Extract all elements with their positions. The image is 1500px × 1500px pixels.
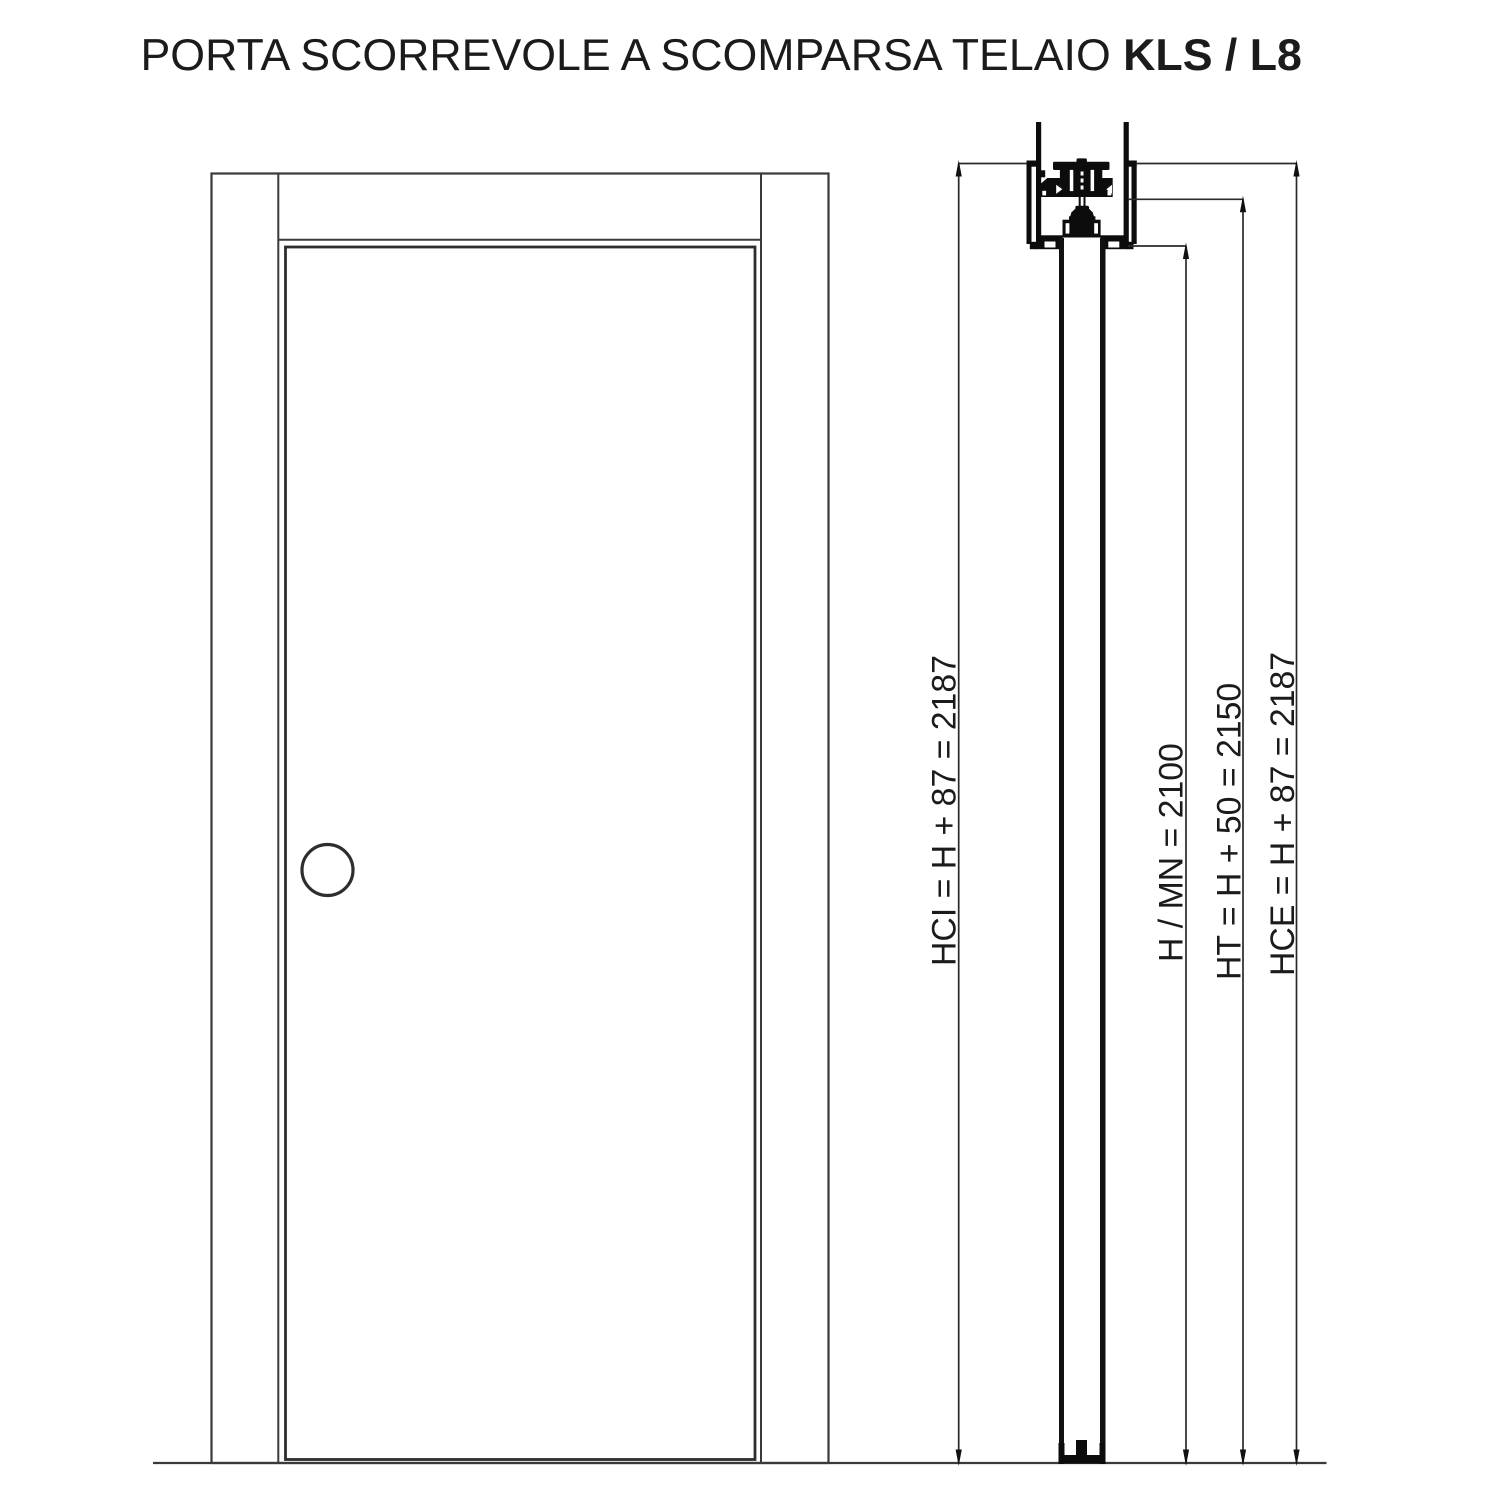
svg-text:PORTA SCORREVOLE A SCOMPARSA T: PORTA SCORREVOLE A SCOMPARSA TELAIO KLS … <box>141 31 1302 80</box>
svg-text:H / MN = 2100: H / MN = 2100 <box>1153 743 1191 962</box>
svg-text:HCI = H + 87 = 2187: HCI = H + 87 = 2187 <box>926 655 964 966</box>
svg-text:HCE = H + 87 = 2187: HCE = H + 87 = 2187 <box>1264 652 1302 976</box>
svg-text:HT = H + 50 = 2150: HT = H + 50 = 2150 <box>1211 683 1249 980</box>
